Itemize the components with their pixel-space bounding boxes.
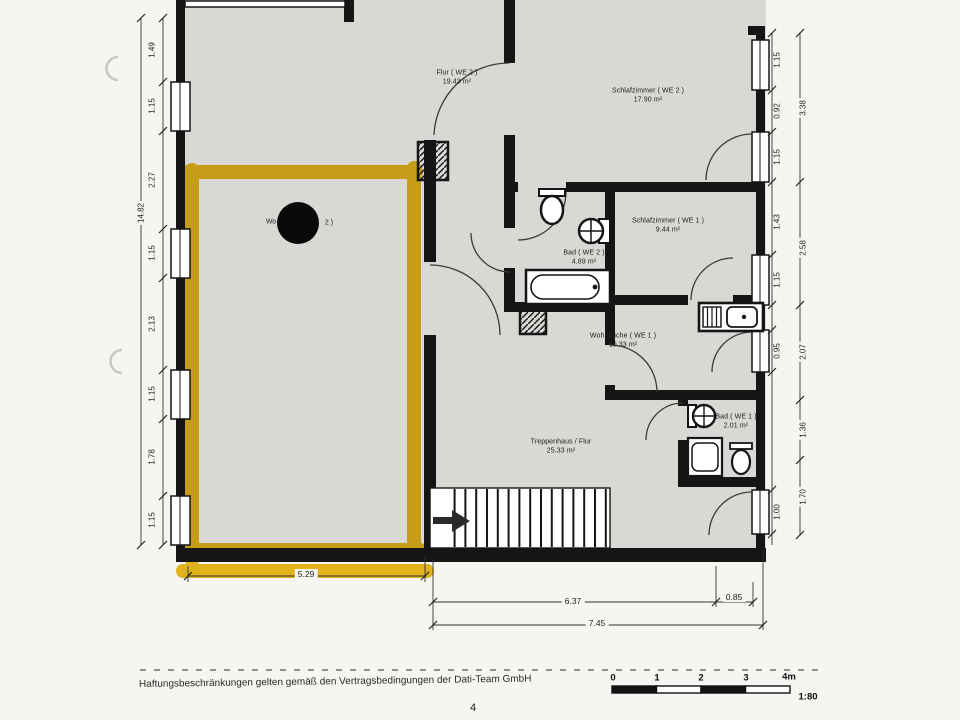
room-label-schlafzimmer-we1: Schlafzimmer ( WE 1 )9.44 m² [632,217,704,236]
stairs [430,488,610,548]
scale-ratio: 1:80 [798,692,817,703]
shower-icon-we1 [688,438,722,476]
dim-right-outer-1: 2.58 [799,238,808,258]
dim-right-outer-4: 1.70 [799,487,808,507]
room-label-bad-we2: Bad ( WE 2 )4.89 m² [563,249,604,268]
room-label-wohnraum-we2-suffix: 2 ) [325,220,333,227]
scale-bar [612,686,790,693]
room-label-flur-we2: Flur ( WE 2 )19.43 m² [437,69,478,88]
cut-wall-line [185,1,345,7]
scanned-floor-plan-page: Flur ( WE 2 )19.43 m² Schlafzimmer ( WE … [0,0,960,720]
scale-tick-3: 3 [743,673,748,684]
dim-left-5: 1.15 [148,384,157,404]
dim-right-outer-3: 1.36 [799,420,808,440]
kitchen-sink-icon-we1 [699,303,763,331]
sink-icon-we2 [579,219,610,243]
dim-left-3: 1.15 [148,243,157,263]
dim-bottom-a: 6.37 [562,596,585,606]
dim-bottom-b: 0.85 [723,592,746,602]
dim-bottom-highlight: 5.29 [295,569,318,579]
toilet-icon-we1 [730,443,752,474]
hole-punches [107,57,122,373]
sink-icon-we1 [688,405,715,427]
dim-right-inner-6: 1.00 [773,502,782,522]
dim-right-inner-2: 1.15 [773,147,782,167]
scale-end-label: 4m [782,672,796,683]
dim-left-1: 1.15 [148,96,157,116]
scale-tick-1: 1 [654,673,659,684]
page-number: 4 [470,702,476,714]
room-label-bad-we1: Bad ( WE 1 )2.01 m² [715,413,756,432]
dim-right-inner-1: 0.92 [773,101,782,121]
toilet-icon-we2 [539,189,565,224]
dim-left-total: 14.82 [137,201,146,225]
room-label-treppenhaus: Treppenhaus / Flur25.33 m² [531,438,592,457]
dim-left-0: 1.49 [148,40,157,60]
dim-right-inner-0: 1.15 [773,50,782,70]
scale-tick-0: 0 [610,673,615,684]
room-label-schlafzimmer-we2: Schlafzimmer ( WE 2 )17.90 m² [612,87,684,106]
dim-left-6: 1.78 [148,447,157,467]
dim-left-2: 2.27 [148,170,157,190]
dim-right-outer-2: 2.07 [799,342,808,362]
redaction-dot [277,202,319,244]
room-label-wohnkueche-we1: Wohnküche ( WE 1 )10.33 m² [590,332,656,351]
dim-left-4: 2.13 [148,314,157,334]
dim-right-inner-3: 1.43 [773,212,782,232]
dim-right-outer-0: 3.38 [799,98,808,118]
dim-right-inner-4: 1.15 [773,270,782,290]
scale-tick-2: 2 [698,673,703,684]
dim-left-7: 1.15 [148,510,157,530]
floor-plan-drawing [0,0,960,720]
bathtub-icon-we2 [526,270,610,304]
dim-right-inner-5: 0.95 [773,341,782,361]
room-label-wohnraum-we2-prefix: Wo [266,219,276,226]
dim-bottom-total: 7.45 [586,618,609,628]
